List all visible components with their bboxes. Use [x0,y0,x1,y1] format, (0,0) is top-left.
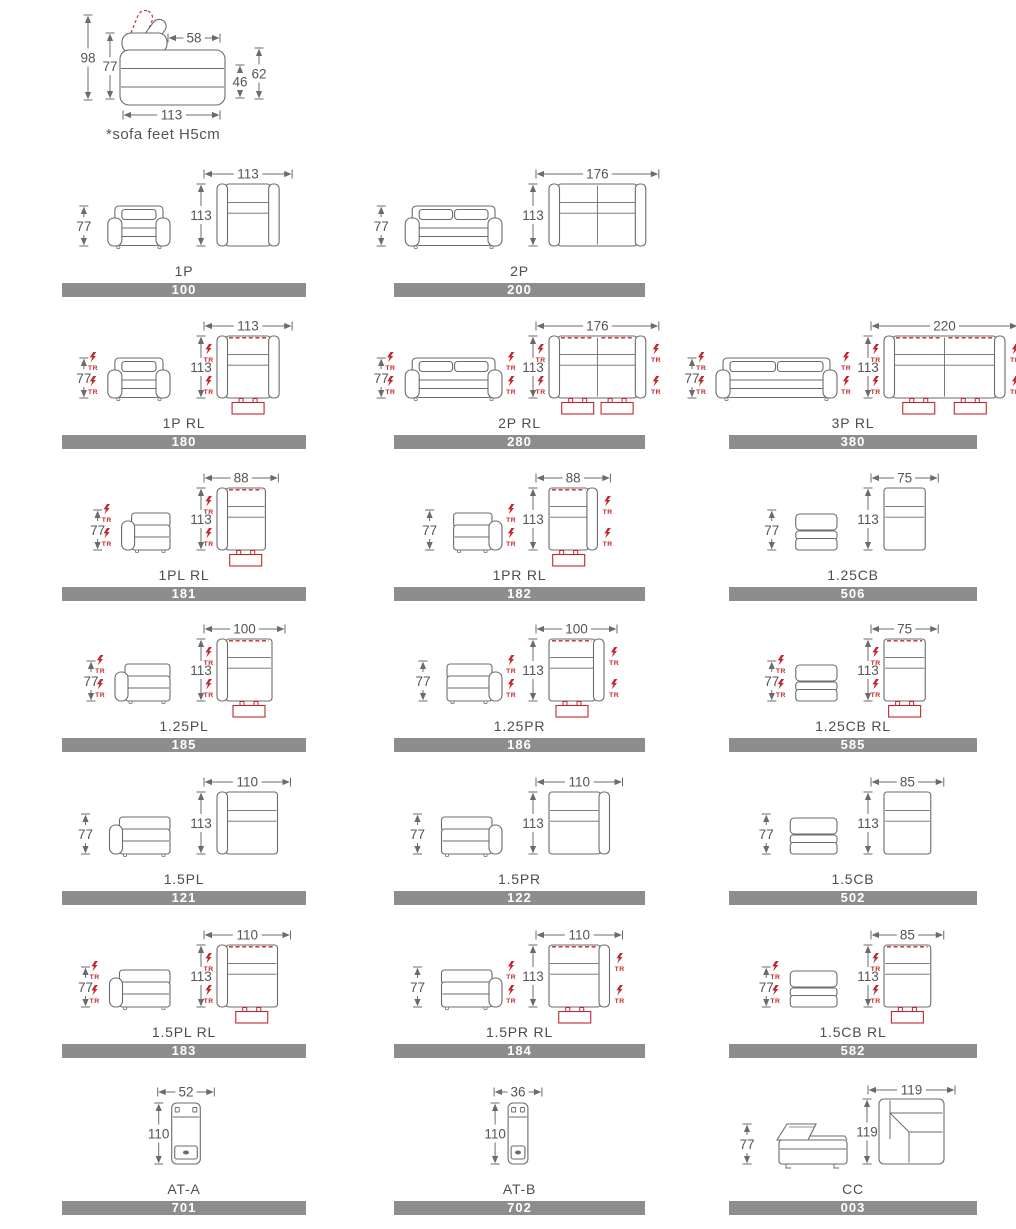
module-code: 183 [172,1044,197,1058]
dim-text: 113 [857,663,879,678]
module-code: 100 [172,283,197,297]
module-cell: TRTR8811377TRTR1PR RL182 [394,470,645,604]
dim-text: 119 [856,1124,878,1139]
module-cell: TRTR10011377TRTR1.25PL185 [62,621,306,755]
dim-text: 110 [484,1126,506,1141]
dim-text: 110 [236,775,258,790]
lightning-icon [508,376,514,386]
dim-text: TR [603,541,613,548]
width-dim: 110 [536,775,623,790]
module-diagram: 52110 [62,1084,306,1182]
dim-text: TR [770,974,780,981]
front-view [110,817,171,857]
module-code: 181 [172,587,197,601]
module-diagram: TRTR11011377TRTR [394,927,645,1025]
dim-text: 77 [410,827,425,842]
lightning-icon [873,647,879,657]
top-view [879,1099,944,1164]
dim-text: 113 [857,360,879,375]
height-dim: 113 [522,488,544,550]
lightning-icon [508,679,514,689]
lightning-icon [1012,376,1016,386]
height-dim: 46 [232,65,247,98]
top-view [884,639,925,717]
module-code-bar: 183 [62,1044,306,1058]
height-dim: 77 [739,1124,754,1164]
height-dim: 77 [422,510,437,550]
tr-recliner-marker: TR [102,504,112,524]
front-view [454,513,502,553]
tr-recliner-marker: TR [871,679,881,699]
module-label: 2P [394,263,645,279]
height-dim: 77 [374,206,389,246]
height-dim: 98 [80,15,95,100]
lightning-icon [604,528,610,538]
module-label: 1.25CB [729,567,977,583]
module-code-bar: 506 [729,587,977,601]
module-diagram: TRTR8811377TRTR [394,470,645,568]
cupholder-icon [515,1151,521,1155]
dim-text: 100 [233,622,256,637]
top-view [884,792,931,854]
dim-text: TR [776,668,786,675]
lightning-icon [772,961,778,971]
height-dim: 113 [190,792,212,854]
lightning-icon [508,985,514,995]
front-view [796,665,837,701]
lightning-icon [206,679,212,689]
lightning-icon [97,655,103,665]
height-dim: 113 [857,792,879,854]
module-diagram: 7511377 [729,470,977,568]
height-dim: 77 [764,510,779,550]
module-code: 186 [507,738,532,752]
tr-recliner-marker: TR [506,504,516,524]
cupholder-icon [183,1151,189,1155]
module-diagram: 11011377 [62,774,306,872]
dim-text: TR [385,389,395,396]
module-diagram: TRTR8511377TRTR [729,927,977,1025]
module-code: 122 [507,891,532,905]
module-code: 182 [507,587,532,601]
height-dim: 113 [857,488,879,550]
footrest-extended [230,551,262,567]
side-view-spec: 9877584662113 [60,6,300,126]
lightning-icon [611,679,617,689]
width-dim: 110 [204,928,291,943]
module-code-bar: 180 [62,435,306,449]
front-view [447,664,502,704]
tr-recliner-marker: TR [770,961,780,981]
module-cell: TRTR11011377TRTR1.5PL RL183 [62,927,306,1061]
dim-text: TR [506,974,516,981]
dim-text: TR [871,998,881,1005]
front-view [108,358,170,401]
dim-text: TR [651,389,661,396]
dim-text: TR [609,660,619,667]
module-cell: TRTRTRTR17611377TRTRTRTR2P RL280 [394,318,645,452]
tr-recliner-marker: TR [204,985,214,1005]
lightning-icon [653,376,659,386]
front-view [405,358,502,401]
dim-text: 77 [78,980,93,995]
dim-text: 113 [522,360,544,375]
module-code: 702 [507,1201,532,1215]
front-view [790,971,837,1007]
footrest-extended [553,551,585,567]
module-label: 1PR RL [394,567,645,583]
height-dim: 113 [522,945,544,1007]
module-cell: 85113771.5CB502 [729,774,977,908]
footrest-extended [903,399,935,415]
dim-text: TR [95,668,105,675]
module-diagram: TRTRTRTR22011377TRTRTRTR [729,318,977,416]
top-view [217,488,265,566]
tr-recliner-marker: TR [871,376,881,396]
width-dim: 52 [158,1085,215,1100]
top-view [549,639,604,717]
tr-recliner-marker: TR [871,985,881,1005]
lightning-icon [508,528,514,538]
module-code-bar: 122 [394,891,645,905]
footrest-extended [556,702,588,718]
dim-text: TR [204,541,214,548]
lightning-icon [653,344,659,354]
dim-text: 113 [161,108,183,123]
lightning-icon [873,376,879,386]
dim-text: 77 [739,1137,754,1152]
top-view [884,336,1005,414]
height-dim: 77 [410,967,425,1007]
width-dim: 176 [536,319,659,334]
module-code-bar: 200 [394,283,645,297]
tr-recliner-marker: TR [506,376,516,396]
dim-text: TR [615,998,625,1005]
footrest-extended [562,399,594,415]
tr-recliner-marker: TR [506,985,516,1005]
footrest-extended [559,1008,591,1024]
height-dim: 113 [522,792,544,854]
dim-text: 46 [232,74,247,89]
module-code: 003 [841,1201,866,1215]
width-dim: 75 [871,622,938,637]
module-cell: TRTR10011377TRTR1.25PR186 [394,621,645,755]
footrest-extended [232,399,264,415]
lightning-icon [617,953,623,963]
module-code: 121 [172,891,197,905]
dim-text: TR [95,692,105,699]
tr-recliner-marker: TR [841,352,851,372]
dim-text: TR [506,998,516,1005]
width-dim: 110 [204,775,291,790]
dim-text: TR [770,998,780,1005]
width-dim: 220 [871,319,1016,334]
dim-text: 77 [102,59,117,74]
module-code-bar: 121 [62,891,306,905]
module-code: 180 [172,435,197,449]
dim-text: TR [90,974,100,981]
dim-text: TR [102,541,112,548]
front-view [777,1124,847,1168]
dim-text: TR [88,365,98,372]
module-diagram: 11011377 [394,774,645,872]
height-dim: 77 [78,814,93,854]
module-cell: TRTR11011377TRTR1.5PR RL184 [394,927,645,1061]
dim-text: TR [1010,357,1016,364]
height-dim: 119 [856,1099,878,1164]
dim-text: 77 [83,674,98,689]
tr-recliner-marker: TR [1010,376,1016,396]
tr-recliner-marker: TR [776,655,786,675]
dim-text: 77 [684,371,699,386]
dim-text: TR [696,365,706,372]
tr-recliner-marker: TR [204,376,214,396]
dim-text: TR [536,389,546,396]
module-label: 1.5PL RL [62,1024,306,1040]
module-code: 585 [841,738,866,752]
dim-text: 113 [237,319,259,334]
width-dim: 113 [123,108,220,123]
tr-recliner-marker: TR [506,961,516,981]
lightning-icon [778,655,784,665]
module-code: 506 [841,587,866,601]
lightning-icon [1012,344,1016,354]
tr-recliner-marker: TR [506,528,516,548]
module-cell: TRTR7511377TRTR1.25CB RL585 [729,621,977,755]
dim-text: 113 [522,208,544,223]
top-view [172,1103,201,1164]
front-view [108,206,170,249]
width-dim: 75 [871,471,938,486]
module-label: CC [729,1181,977,1197]
module-label: 1PL RL [62,567,306,583]
dim-text: 77 [76,219,91,234]
module-label: AT-A [62,1181,306,1197]
dim-text: 113 [190,360,212,375]
module-label: 1.5CB [729,871,977,887]
footrest-extended [601,399,633,415]
dim-text: TR [204,692,214,699]
dim-text: 85 [900,928,915,943]
dim-text: 110 [568,928,590,943]
module-diagram: TRTR11311377TRTR [62,318,306,416]
dim-text: 113 [190,512,212,527]
dim-text: 113 [857,512,879,527]
dim-text: 77 [76,371,91,386]
module-label: 1.25PR [394,718,645,734]
dim-text: 113 [522,969,544,984]
module-code-bar: 184 [394,1044,645,1058]
front-view [790,818,837,854]
dim-text: 113 [522,512,544,527]
dim-text: TR [90,998,100,1005]
height-dim: 113 [190,184,212,246]
top-view [217,792,278,854]
tr-recliner-marker: TR [609,679,619,699]
width-dim: 36 [494,1085,542,1100]
height-dim: 62 [251,48,266,99]
dim-text: 85 [900,775,915,790]
module-code: 701 [172,1201,197,1215]
dim-text: 98 [80,50,95,65]
module-code-bar: 003 [729,1201,977,1215]
lightning-icon [508,961,514,971]
lightning-icon [617,985,623,995]
module-code: 380 [841,435,866,449]
dim-text: 77 [410,980,425,995]
lightning-icon [873,985,879,995]
module-diagram: 8511377 [729,774,977,872]
dim-text: TR [1010,389,1016,396]
dim-text: TR [204,998,214,1005]
module-cell: 113113771P100 [62,166,306,300]
module-code: 280 [507,435,532,449]
width-dim: 88 [536,471,610,486]
dim-text: 77 [422,523,437,538]
dim-text: 77 [759,827,774,842]
lightning-icon [843,376,849,386]
dim-text: TR [776,692,786,699]
module-label: 3P RL [729,415,977,431]
module-cell: 77119119CC003 [729,1084,977,1218]
tr-recliner-marker: TR [603,528,613,548]
module-diagram: 17611377 [394,166,645,264]
dim-text: 176 [586,167,609,182]
module-code-bar: 186 [394,738,645,752]
dim-text: 113 [190,816,212,831]
tr-recliner-marker: TR [95,655,105,675]
lightning-icon [873,953,879,963]
dim-text: 119 [901,1083,923,1098]
top-view [549,792,610,854]
dim-text: 62 [251,66,266,81]
dim-text: TR [696,389,706,396]
module-code-bar: 701 [62,1201,306,1215]
dim-text: 77 [374,219,389,234]
tr-recliner-marker: TR [90,961,100,981]
dim-text: TR [204,389,214,396]
lightning-icon [508,352,514,362]
module-cell: TRTRTRTR22011377TRTRTRTR3P RL380 [729,318,977,452]
dim-text: 77 [415,674,430,689]
top-view [217,184,279,246]
lightning-icon [206,528,212,538]
module-diagram: TRTR8811377TRTR [62,470,306,568]
tr-recliner-marker: TR [615,953,625,973]
front-view [122,513,170,553]
dim-text: TR [506,389,516,396]
module-code: 184 [507,1044,532,1058]
dim-text: TR [506,692,516,699]
dim-text: TR [841,389,851,396]
lightning-icon [90,352,96,362]
lightning-icon [538,376,544,386]
module-cell: 110113771.5PR122 [394,774,645,908]
dim-text: 176 [586,319,609,334]
lightning-icon [508,504,514,514]
module-diagram: 11311377 [62,166,306,264]
footrest-extended [891,1008,923,1024]
module-label: 1.5PR RL [394,1024,645,1040]
module-diagram: TRTR10011377TRTR [394,621,645,719]
tr-recliner-marker: TR [696,352,706,372]
dim-text: 113 [522,663,544,678]
dim-text: TR [385,365,395,372]
height-dim: 113 [522,639,544,701]
width-dim: 58 [168,31,220,46]
module-code: 502 [841,891,866,905]
side-view-diagram: 9877584662113 [60,6,300,126]
lightning-icon [206,985,212,995]
dim-text: 77 [759,980,774,995]
footrest-extended [954,399,986,415]
dim-text: TR [841,365,851,372]
module-code-bar: 380 [729,435,977,449]
dim-text: 113 [190,969,212,984]
module-code-bar: 185 [62,738,306,752]
module-code-bar: 182 [394,587,645,601]
top-view [549,945,610,1023]
lightning-icon [206,647,212,657]
lightning-icon [604,496,610,506]
dim-text: 77 [764,674,779,689]
dim-text: 113 [522,816,544,831]
front-view [796,514,837,550]
dim-text: TR [506,668,516,675]
dim-text: 113 [190,208,212,223]
dim-text: TR [506,517,516,524]
tr-recliner-marker: TR [651,376,661,396]
height-dim: 110 [148,1103,170,1164]
dim-text: 75 [897,471,912,486]
width-dim: 100 [536,622,617,637]
tr-recliner-marker: TR [609,647,619,667]
module-code-bar: 100 [62,283,306,297]
height-dim: 77 [415,661,430,701]
module-cell: TRTR11311377TRTR1P RL180 [62,318,306,452]
footrest-extended [236,1008,268,1024]
module-cell: 110113771.5PL121 [62,774,306,908]
width-dim: 119 [868,1083,955,1098]
dim-text: TR [603,509,613,516]
height-dim: 113 [522,184,544,246]
width-dim: 113 [204,319,292,334]
tr-recliner-marker: TR [506,655,516,675]
height-dim: 77 [102,33,117,99]
top-view [217,336,279,414]
width-dim: 88 [204,471,278,486]
lightning-icon [698,352,704,362]
dim-text: 110 [236,928,258,943]
module-code-bar: 280 [394,435,645,449]
front-view [110,970,171,1010]
dim-text: 52 [178,1085,193,1100]
module-code: 582 [841,1044,866,1058]
furniture-spec-sheet: 9877584662113 *sofa feet H5cm 113113771P… [0,0,1016,1229]
front-view [115,664,170,704]
width-dim: 85 [871,775,944,790]
tr-recliner-marker: TR [615,985,625,1005]
dim-text: 113 [857,969,879,984]
module-cell: 176113772P200 [394,166,645,300]
module-code-bar: 585 [729,738,977,752]
lightning-icon [508,655,514,665]
top-view [884,488,925,550]
dim-text: 88 [234,471,249,486]
module-cell: 52110AT-A701 [62,1084,306,1218]
module-label: AT-B [394,1181,645,1197]
lightning-icon [206,344,212,354]
